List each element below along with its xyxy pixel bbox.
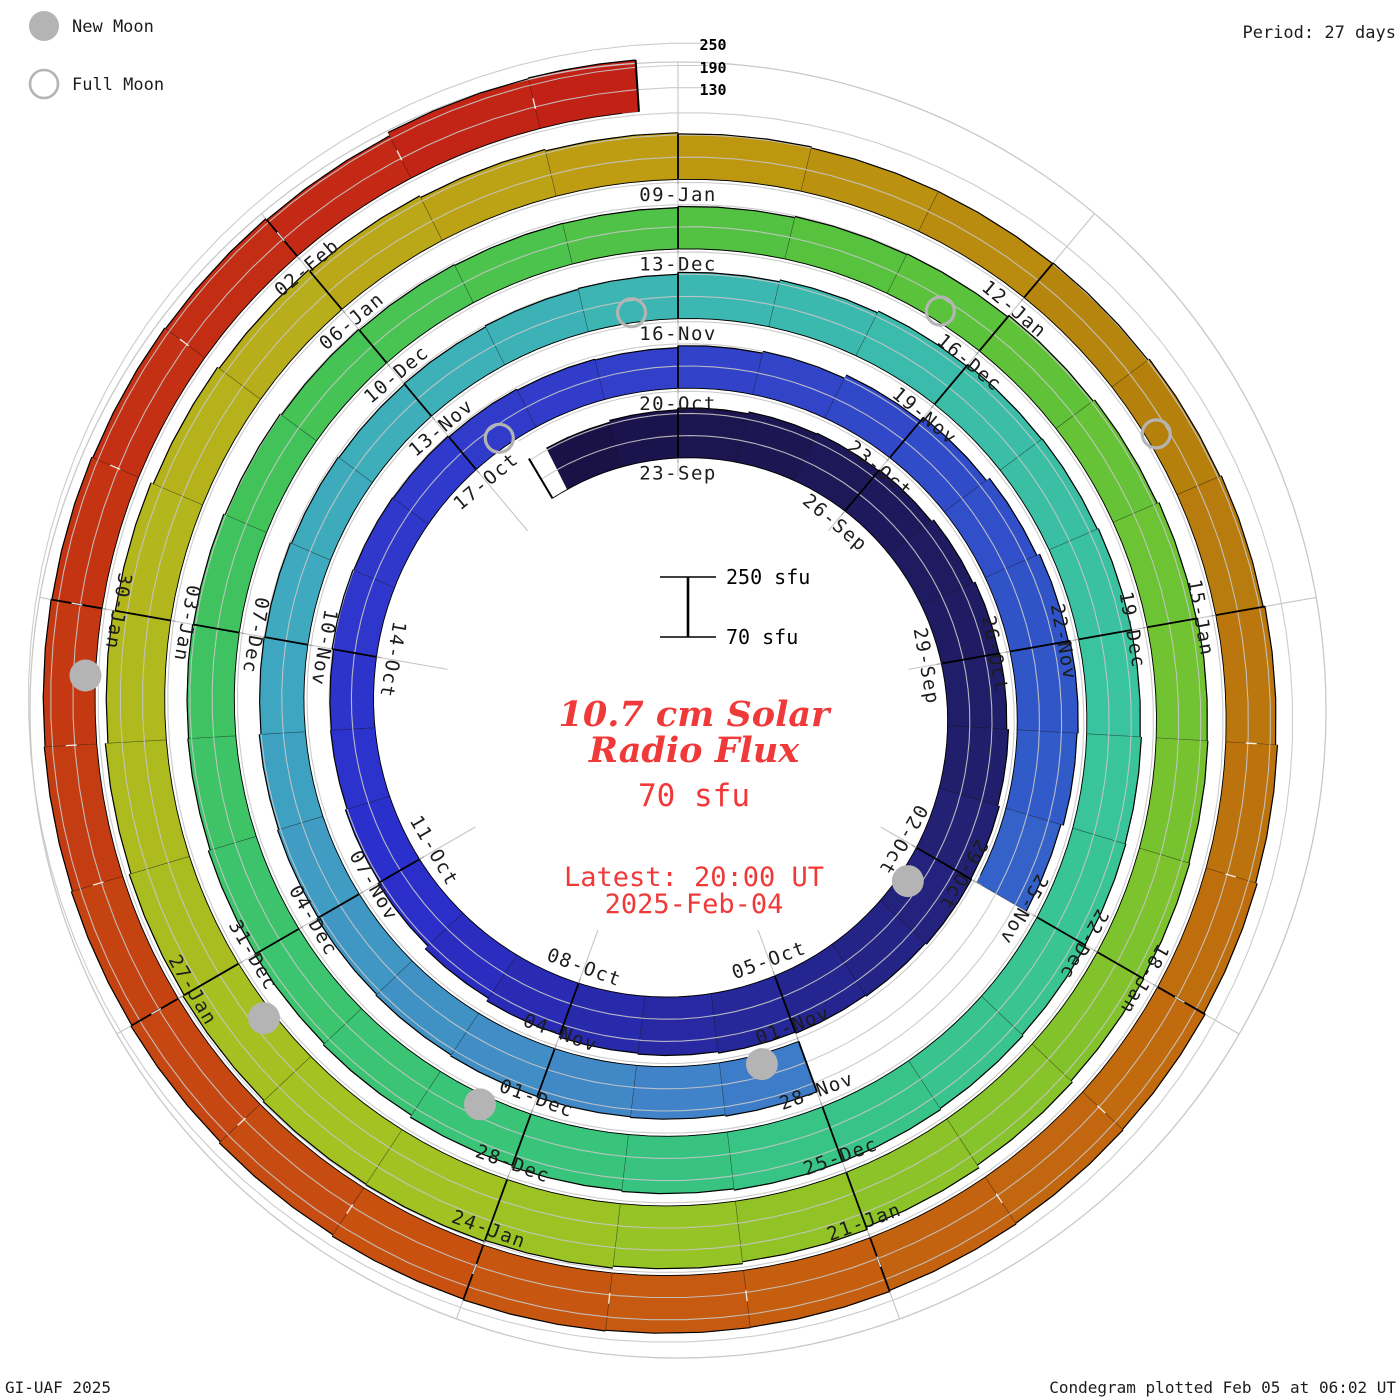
new-moon-marker: [746, 1048, 778, 1080]
chart-title-line1: 10.7 cm Solar: [559, 694, 833, 735]
radial-scale-130: 130: [699, 81, 726, 99]
date-label: 09-Jan: [639, 184, 717, 206]
date-label: 13-Dec: [639, 254, 717, 276]
current-flux-value: 70 sfu: [638, 778, 750, 814]
moon-legend: New Moon Full Moon: [29, 11, 164, 98]
radial-scale-250: 250: [699, 36, 726, 54]
credit-label: GI-UAF 2025: [5, 1378, 111, 1397]
full-moon-icon: [30, 70, 58, 98]
full-moon-label: Full Moon: [72, 75, 164, 95]
new-moon-label: New Moon: [72, 17, 154, 37]
condegram-page: 23-Sep26-Sep29-Sep02-Oct05-Oct08-Oct11-O…: [0, 0, 1400, 1400]
date-label: 16-Nov: [639, 323, 717, 345]
radial-scale-labels: 250 190 130: [699, 36, 726, 99]
date-label: 20-Oct: [639, 393, 717, 415]
new-moon-icon: [29, 11, 59, 41]
latest-date-label: 2025-Feb-04: [605, 889, 784, 920]
scale-bar-bottom-label: 70 sfu: [726, 625, 798, 649]
period-label: Period: 27 days: [1242, 23, 1396, 43]
scale-bar-top-label: 250 sfu: [726, 565, 810, 589]
condegram-chart: 23-Sep26-Sep29-Sep02-Oct05-Oct08-Oct11-O…: [0, 0, 1400, 1400]
chart-title-line2: Radio Flux: [588, 730, 800, 771]
flux-scale-bar: 250 sfu 70 sfu: [660, 565, 810, 649]
new-moon-marker: [248, 1002, 280, 1034]
new-moon-marker: [69, 659, 101, 691]
new-moon-marker: [464, 1088, 496, 1120]
center-title-block: 10.7 cm Solar Radio Flux 70 sfu Latest: …: [559, 694, 833, 920]
date-label: 23-Sep: [639, 463, 717, 485]
plotted-timestamp-label: Condegram plotted Feb 05 at 06:02 UT: [1049, 1378, 1396, 1397]
radial-scale-190: 190: [699, 59, 726, 77]
